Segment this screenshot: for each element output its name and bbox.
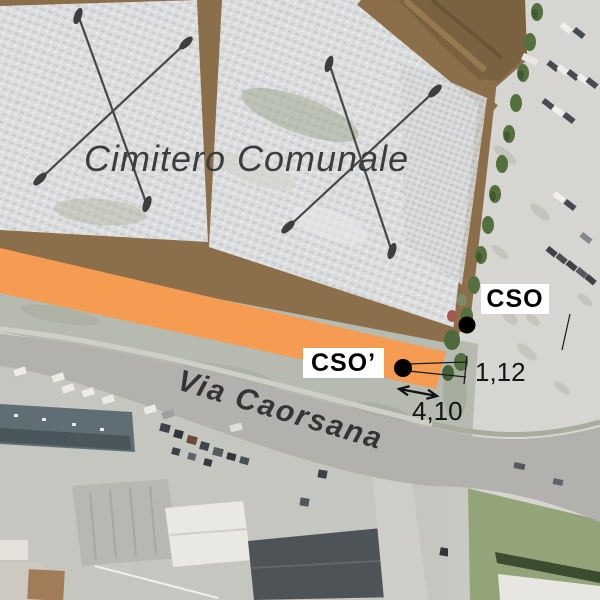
dimension-offset-value: 1,12 bbox=[475, 357, 526, 388]
shrub-red bbox=[447, 310, 457, 322]
point-cso-prime-dot bbox=[394, 359, 412, 377]
point-cso-prime-label: CSO’ bbox=[303, 348, 384, 378]
point-cso-dot bbox=[459, 317, 476, 334]
shrub bbox=[457, 294, 467, 306]
bush bbox=[442, 365, 454, 381]
point-cso-label: CSO bbox=[481, 284, 549, 314]
bush bbox=[444, 330, 460, 350]
dimension-width-value: 4,10 bbox=[412, 396, 463, 427]
aerial-map: Cimitero Comunale Via Caorsana CSO CSO’ … bbox=[0, 0, 600, 600]
